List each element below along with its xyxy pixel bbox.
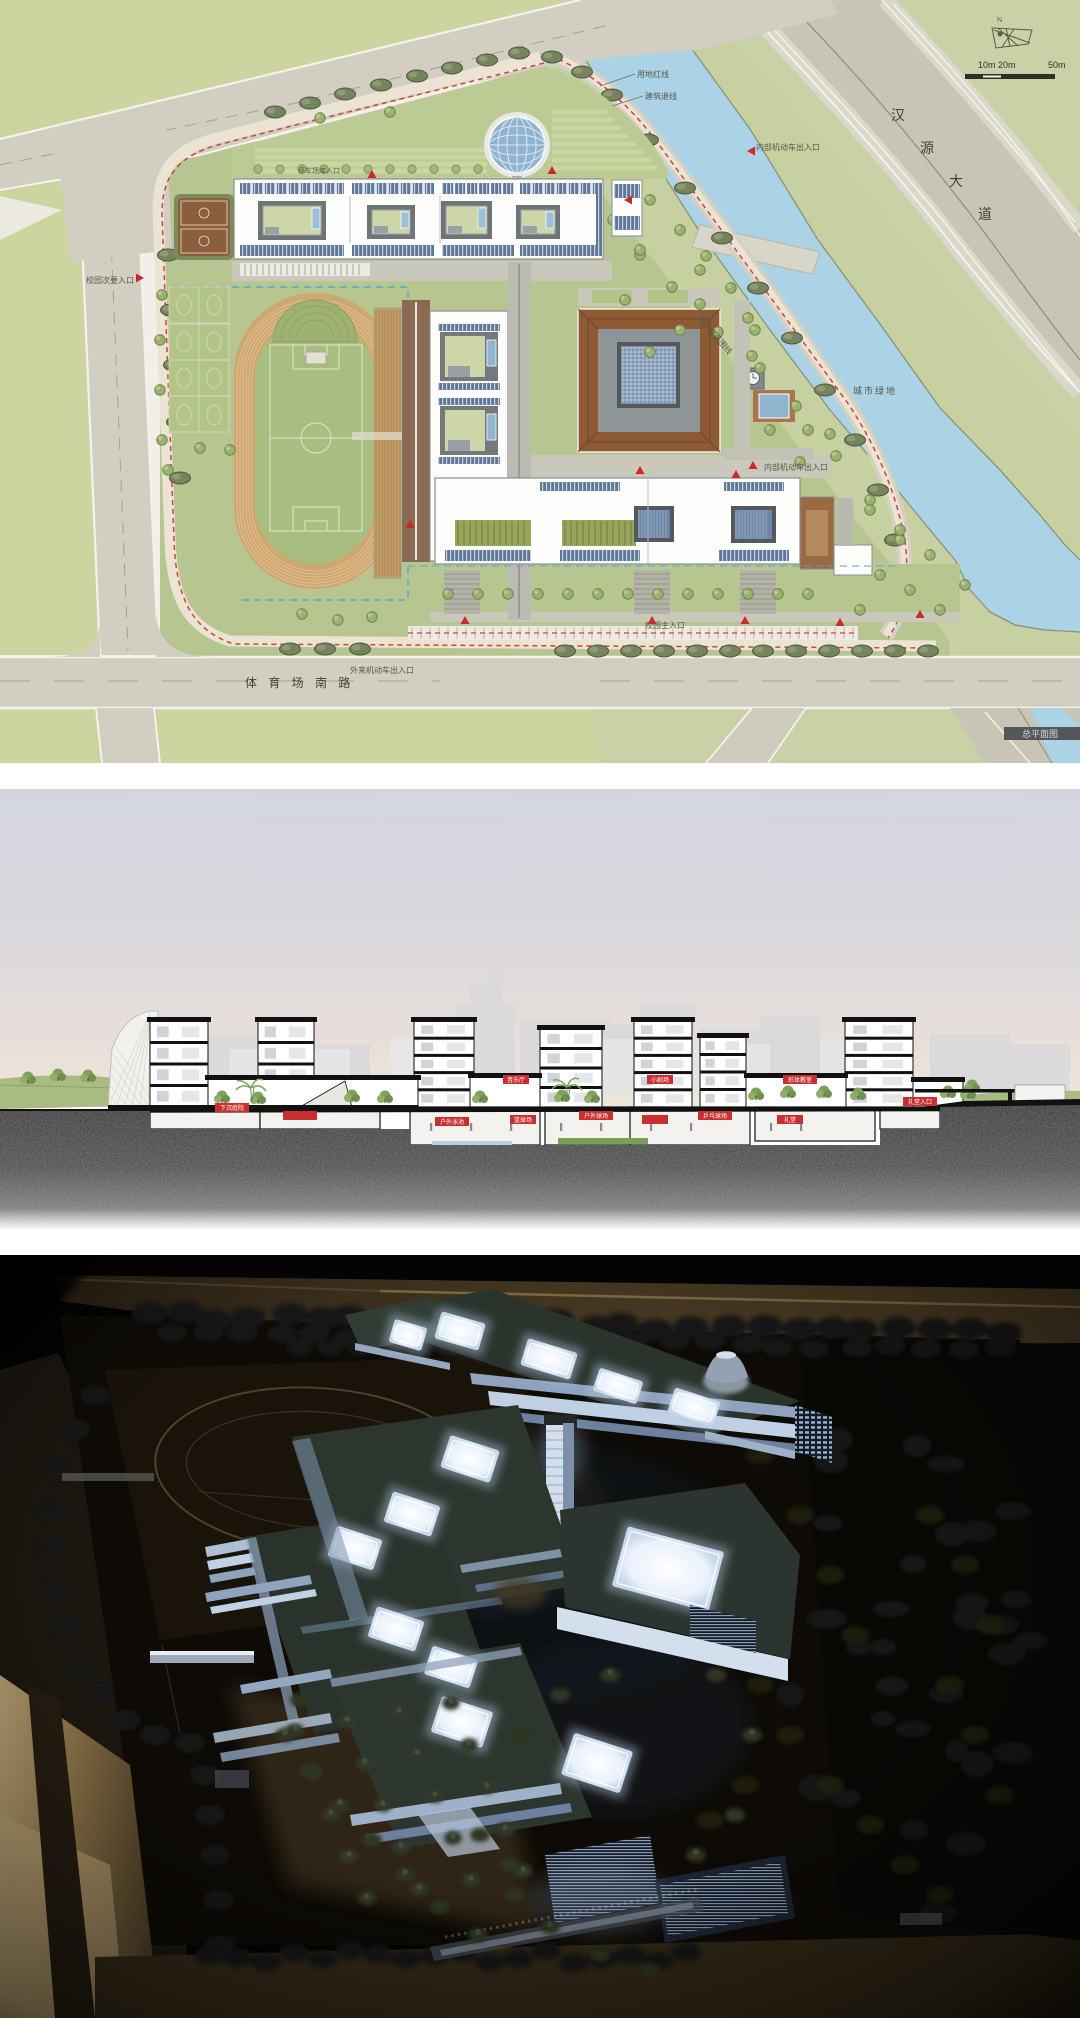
svg-text:校园次要入口: 校园次要入口 bbox=[86, 275, 134, 285]
svg-text:体 育 场 南 路: 体 育 场 南 路 bbox=[245, 675, 354, 690]
svg-text:内部机动车出入口: 内部机动车出入口 bbox=[764, 462, 828, 472]
svg-text:乒乓球场: 乒乓球场 bbox=[703, 1112, 727, 1120]
svg-text:大: 大 bbox=[949, 173, 963, 189]
svg-text:总平面图: 总平面图 bbox=[1022, 728, 1058, 739]
svg-text:源: 源 bbox=[920, 140, 934, 156]
svg-text:户外球场: 户外球场 bbox=[584, 1112, 608, 1120]
svg-text:城市绿地: 城市绿地 bbox=[853, 385, 897, 396]
svg-text:N: N bbox=[997, 17, 1002, 24]
svg-text:下沉庭院: 下沉庭院 bbox=[220, 1104, 244, 1112]
svg-text:户外泳池: 户外泳池 bbox=[440, 1118, 464, 1126]
svg-text:形体教室: 形体教室 bbox=[788, 1076, 812, 1084]
svg-text:音乐厅: 音乐厅 bbox=[507, 1076, 525, 1084]
svg-text:内部机动车出入口: 内部机动车出入口 bbox=[756, 142, 820, 152]
svg-text:50m: 50m bbox=[1048, 60, 1066, 70]
svg-text:篮球场: 篮球场 bbox=[514, 1116, 532, 1124]
svg-text:小剧场: 小剧场 bbox=[651, 1076, 669, 1084]
svg-text:道: 道 bbox=[978, 206, 992, 222]
svg-text:礼堂: 礼堂 bbox=[784, 1116, 796, 1124]
svg-text:礼堂入口: 礼堂入口 bbox=[908, 1098, 932, 1106]
svg-text:停车场库入口: 停车场库入口 bbox=[298, 166, 340, 175]
svg-text:10m 20m: 10m 20m bbox=[978, 60, 1016, 70]
svg-text:汉: 汉 bbox=[891, 107, 905, 123]
svg-text:外来机动车出入口: 外来机动车出入口 bbox=[350, 665, 414, 675]
svg-text:用地红线: 用地红线 bbox=[637, 69, 669, 79]
svg-text:建筑退线: 建筑退线 bbox=[645, 91, 677, 101]
